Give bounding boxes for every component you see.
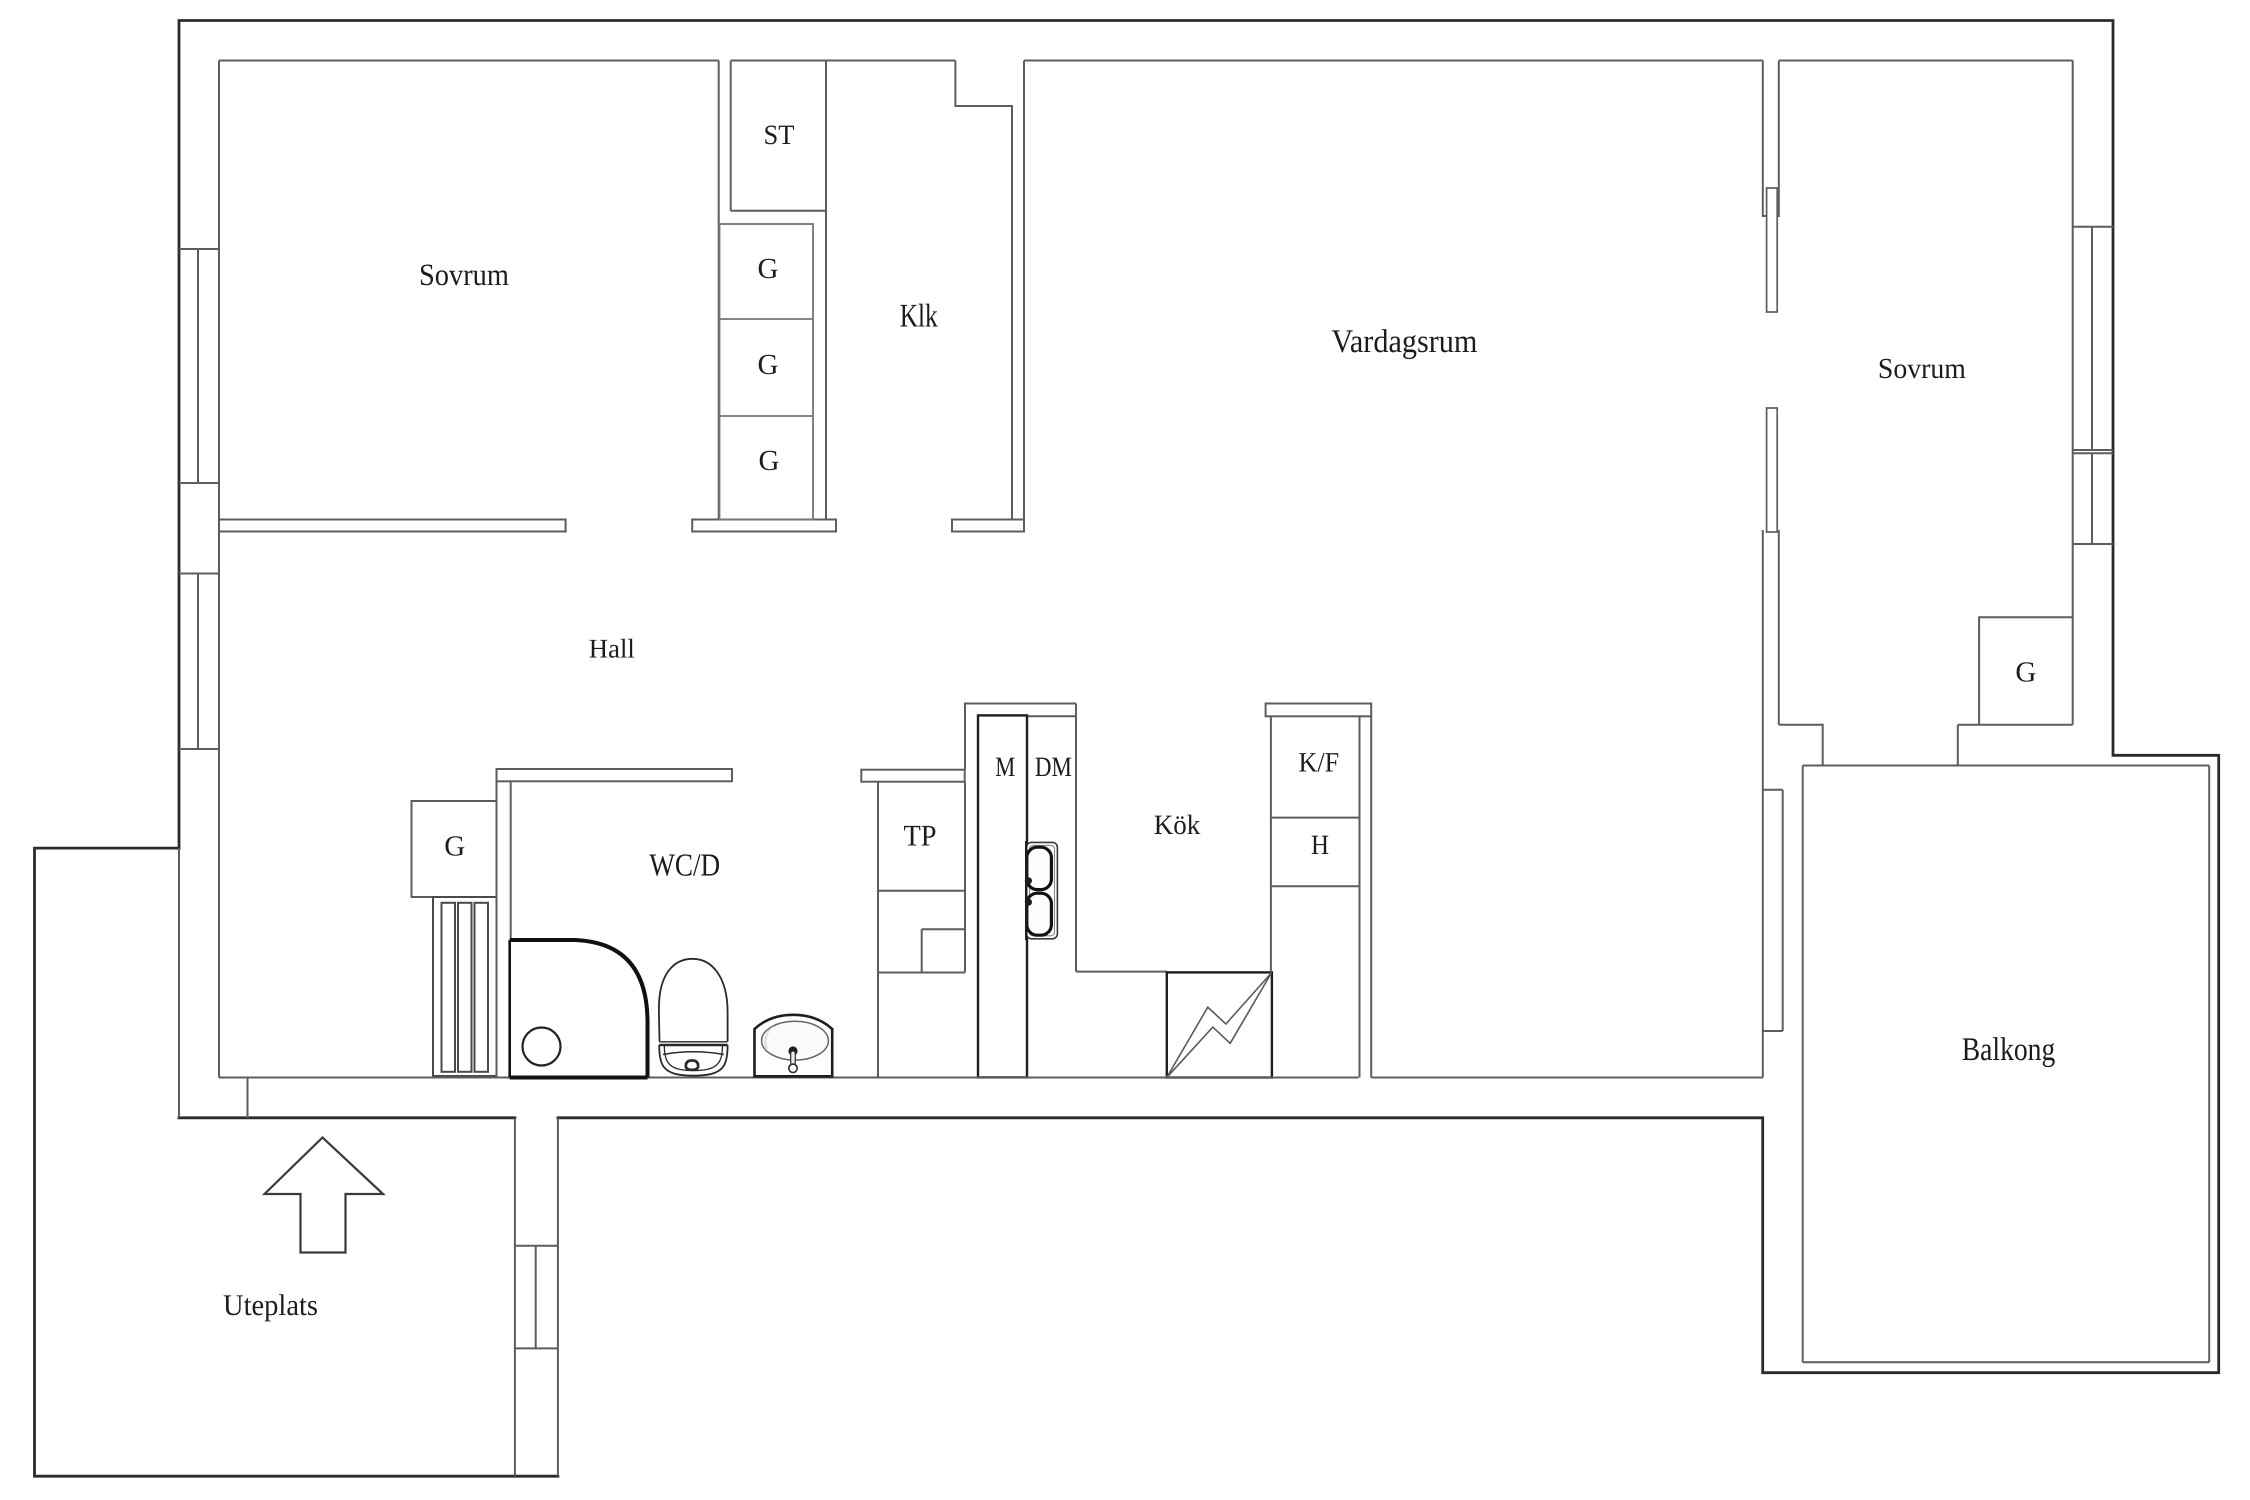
- svg-text:G: G: [444, 830, 465, 862]
- svg-text:G: G: [758, 349, 779, 381]
- svg-text:ST: ST: [764, 120, 795, 151]
- svg-text:G: G: [2015, 657, 2036, 689]
- svg-text:H: H: [1311, 830, 1329, 861]
- svg-text:TP: TP: [904, 820, 937, 853]
- svg-text:G: G: [759, 445, 780, 477]
- svg-text:G: G: [758, 253, 779, 285]
- svg-text:Klk: Klk: [900, 298, 938, 334]
- svg-text:DM: DM: [1035, 752, 1072, 783]
- svg-text:M: M: [995, 752, 1015, 783]
- svg-text:Sovrum: Sovrum: [1878, 353, 1966, 385]
- svg-text:Balkong: Balkong: [1962, 1032, 2056, 1068]
- svg-text:WC/D: WC/D: [649, 846, 720, 882]
- svg-text:Vardagsrum: Vardagsrum: [1331, 324, 1477, 360]
- svg-text:Hall: Hall: [589, 634, 635, 664]
- svg-text:K/F: K/F: [1299, 747, 1340, 778]
- svg-text:Sovrum: Sovrum: [419, 257, 509, 292]
- svg-text:Uteplats: Uteplats: [223, 1289, 318, 1322]
- svg-text:Kök: Kök: [1154, 810, 1201, 841]
